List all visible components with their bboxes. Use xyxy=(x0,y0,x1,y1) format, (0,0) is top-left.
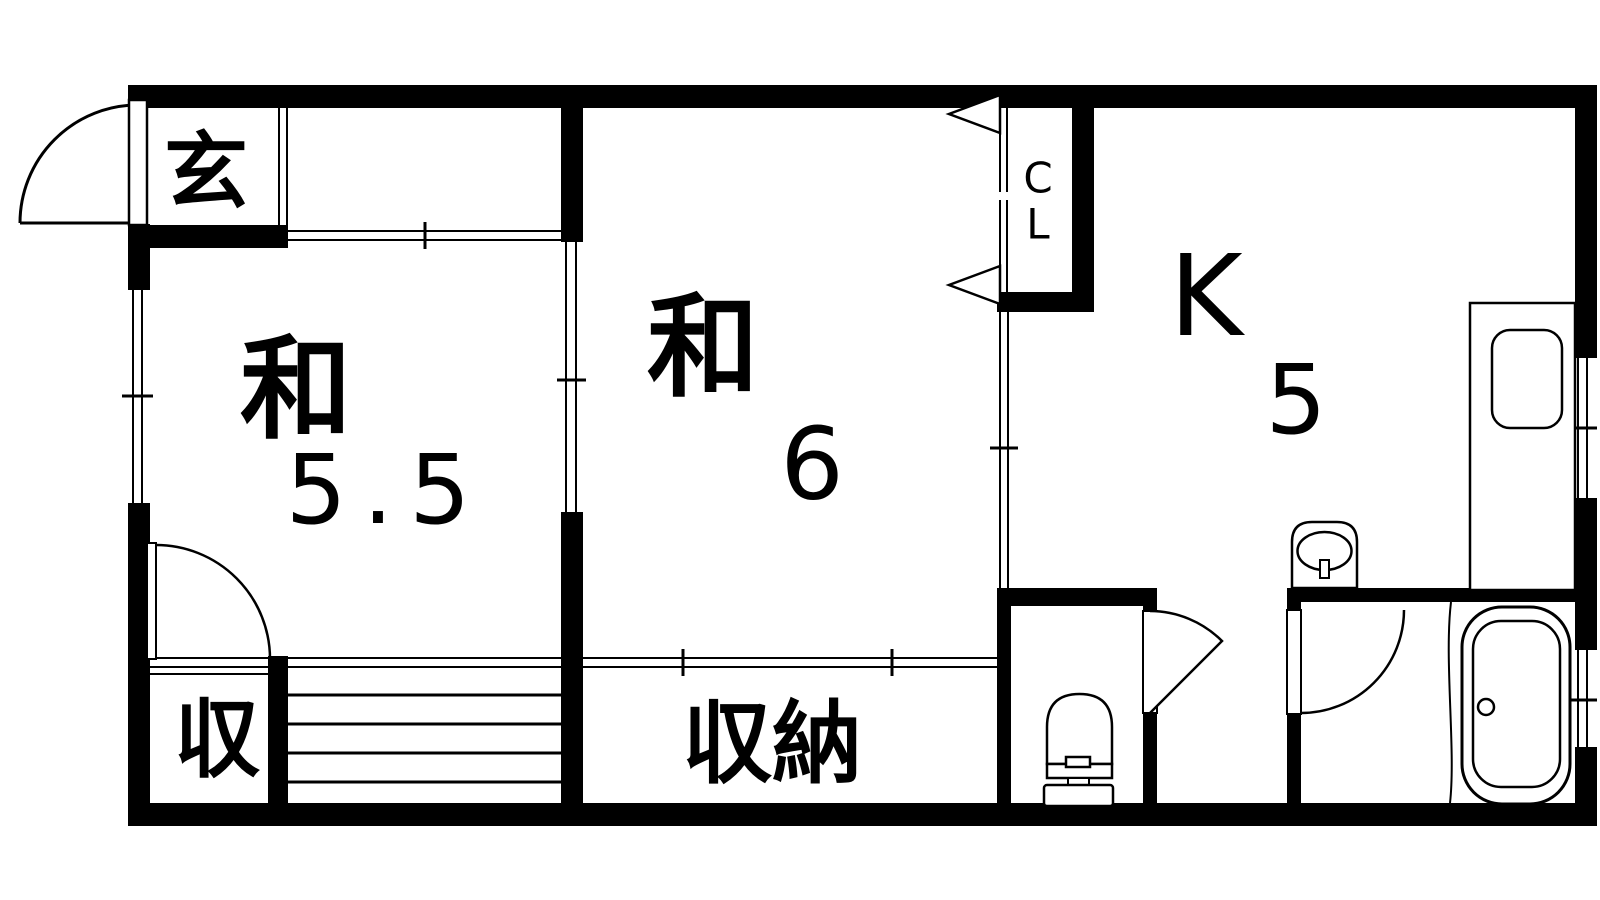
sliding-door-hall xyxy=(288,222,561,249)
floor-plan-drawing: 玄 和 5.5 和 6 K 5 C L 収 収納 xyxy=(0,0,1600,900)
sliding-door-wa6-kitchen xyxy=(990,312,1018,588)
bathtub-icon xyxy=(1449,602,1570,804)
stairs-icon xyxy=(288,695,561,782)
wall-toilet-top xyxy=(997,588,1157,606)
bath-divider xyxy=(1449,602,1452,803)
wall-wa55-wa6-top xyxy=(561,85,583,242)
kitchen-counter xyxy=(1470,303,1575,590)
door-icon-wa55 xyxy=(147,543,270,659)
closet-door-icon xyxy=(949,95,1000,304)
wall-right-b xyxy=(1575,498,1597,650)
washbasin-icon xyxy=(1292,522,1357,588)
kitchen-label: K xyxy=(1169,232,1245,362)
storage-large-label: 収納 xyxy=(682,692,862,797)
wall-wa55-wa6-bottom xyxy=(561,512,583,803)
toilet-icon xyxy=(1044,694,1113,806)
wall-wa6-kitchen-bottom xyxy=(997,588,1011,803)
sliding-door-genkan-edge xyxy=(279,108,287,225)
wall-toilet-right-upper xyxy=(1143,588,1157,611)
wall-closet-bottom xyxy=(997,292,1094,312)
wall-genkan-bottom xyxy=(128,225,288,248)
window-icon-left-wall xyxy=(122,290,153,503)
wall-bath-left-upper xyxy=(1287,602,1301,610)
sliding-door-wa6-storage xyxy=(583,649,997,676)
wall-right-c xyxy=(1575,747,1597,803)
closet-label-c: C xyxy=(1023,154,1052,203)
closet-label-l: L xyxy=(1026,200,1050,249)
floor-plan-canvas: 玄 和 5.5 和 6 K 5 C L 収 収納 xyxy=(0,0,1600,900)
wall-closet-right xyxy=(1072,85,1094,312)
genkan-label: 玄 xyxy=(164,123,248,221)
wall-toilet-right-lower xyxy=(1143,713,1157,803)
door-icon-bath xyxy=(1287,610,1404,714)
entry-door-icon xyxy=(20,100,147,225)
wa6-size: 6 xyxy=(780,406,844,523)
kitchen-sink-icon xyxy=(1492,330,1562,428)
wall-left-a xyxy=(128,85,150,101)
wa6-label: 和 xyxy=(647,283,759,413)
sliding-door-wa55-bottom xyxy=(150,658,561,674)
sliding-door-wa55-wa6 xyxy=(557,242,586,512)
wall-top xyxy=(128,85,1597,108)
kitchen-size: 5 xyxy=(1265,344,1326,456)
wa55-size: 5.5 xyxy=(286,434,487,546)
wall-bottom xyxy=(128,803,1597,826)
wall-storage-small-right xyxy=(268,656,288,803)
door-icon-toilet xyxy=(1143,611,1222,713)
storage-small-label: 収 xyxy=(174,690,260,790)
wall-right-a xyxy=(1575,85,1597,358)
wall-bath-left-lower xyxy=(1287,714,1301,803)
